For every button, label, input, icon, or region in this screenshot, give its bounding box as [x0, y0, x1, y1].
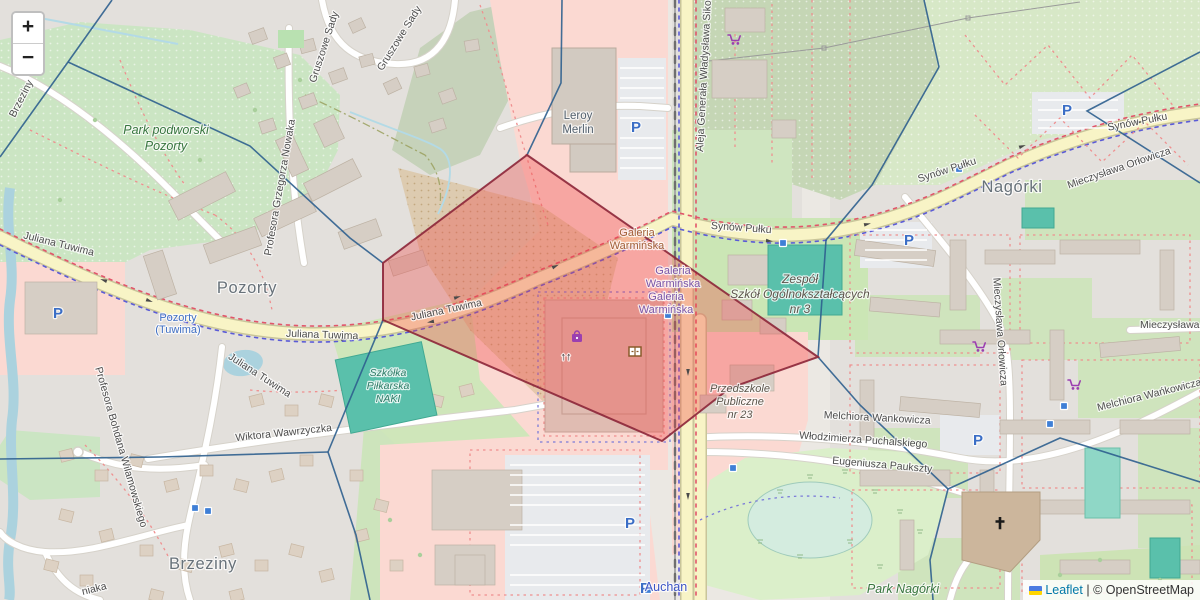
poi-label: Zespół — [781, 272, 818, 286]
street-label: Juliana Tuwima — [286, 328, 359, 343]
ukraine-flag-icon — [1029, 586, 1042, 595]
attribution-separator: | — [1086, 583, 1089, 597]
bus-stop-icon — [780, 240, 787, 247]
place-label: Pozorty — [217, 279, 277, 297]
furniture-shop-icon — [629, 347, 641, 356]
parking-icon: P — [625, 515, 635, 532]
poi-label: nr 3 — [790, 302, 811, 316]
parking-icon: P — [53, 305, 63, 322]
poi-label: Przedszkole — [710, 383, 770, 395]
escalator-icon: ↑↑ — [561, 351, 572, 363]
poi-label: Galeria — [619, 227, 655, 239]
parking-icon: P — [1062, 102, 1072, 119]
bus-stop-icon — [192, 505, 199, 512]
street-label: Mieczysława Orłowicza — [1140, 319, 1200, 331]
zoom-in-button[interactable]: + — [13, 13, 43, 44]
bus-stop-icon — [205, 508, 212, 515]
poi-label: Piłkarska — [367, 380, 410, 392]
poi-label: Szkół Ogólnokształcących — [730, 287, 870, 301]
map-tiles: PPPPPPP↑↑ Juliana TuwimaJuliana TuwimaJu… — [0, 0, 1200, 600]
leaflet-link[interactable]: Leaflet — [1045, 583, 1083, 597]
poi-label: Publiczne — [716, 396, 764, 408]
parking-icon: P — [973, 432, 983, 449]
zoom-control: + − — [11, 11, 45, 76]
poi-label: Szkółka — [370, 367, 407, 379]
poi-label: NAKI — [376, 393, 401, 405]
bus-stop-icon — [1047, 421, 1054, 428]
transit-stop-label: Pozorty — [159, 312, 197, 324]
osm-copyright[interactable]: © OpenStreetMap — [1093, 583, 1194, 597]
poi-label: Leroy — [564, 110, 593, 122]
poi-label: Auchan — [645, 580, 687, 594]
poi-label: Merlin — [562, 124, 593, 136]
poi-label: Warmińska — [646, 278, 701, 290]
park-label: Park podworski — [123, 123, 210, 137]
bus-stop-icon — [730, 465, 737, 472]
park-label: Pozorty — [145, 139, 188, 153]
poi-label: Galeria — [648, 291, 684, 303]
poi-label: Warmińska — [639, 304, 694, 316]
place-label: Brzeziny — [169, 555, 237, 573]
parking-icon: P — [631, 119, 641, 136]
poi-label: Warmińska — [610, 240, 665, 252]
attribution-bar: Leaflet | © OpenStreetMap — [1023, 580, 1200, 600]
zoom-out-button[interactable]: − — [13, 44, 43, 74]
bus-stop-icon — [1061, 403, 1068, 410]
poi-label: Galeria — [655, 265, 691, 277]
poi-label: nr 23 — [727, 409, 753, 421]
parking-icon: P — [904, 232, 914, 249]
transit-stop-label: (Tuwima) — [155, 324, 200, 336]
place-label: Nagórki — [981, 178, 1042, 196]
park-label: Park Nagórki — [867, 582, 940, 596]
map-canvas[interactable]: PPPPPPP↑↑ Juliana TuwimaJuliana TuwimaJu… — [0, 0, 1200, 600]
